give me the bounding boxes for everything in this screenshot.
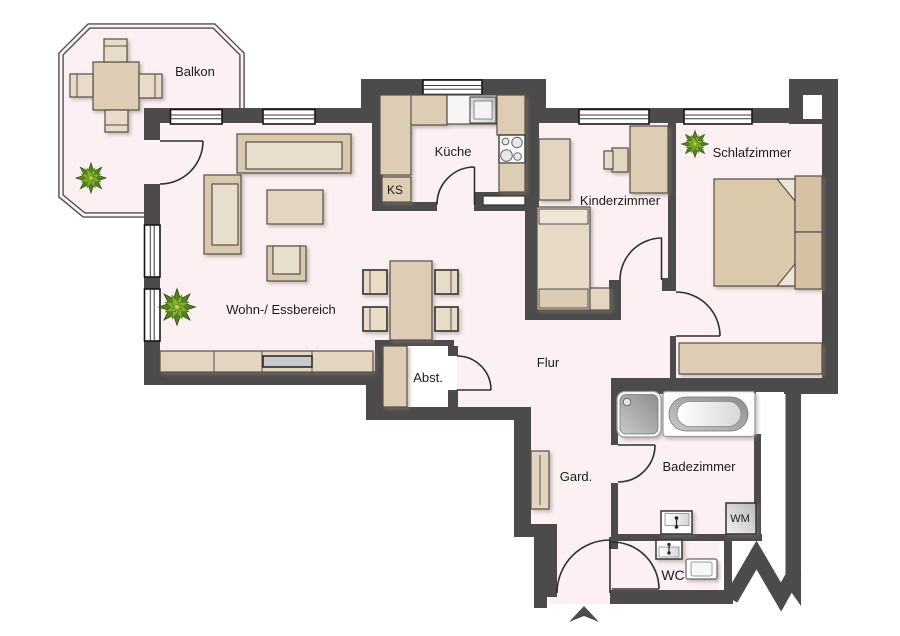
- svg-text:WM: WM: [730, 513, 750, 525]
- svg-text:WC: WC: [661, 567, 684, 583]
- svg-text:Kinderzimmer: Kinderzimmer: [580, 193, 661, 208]
- svg-text:KS: KS: [387, 183, 403, 197]
- svg-text:Abst.: Abst.: [413, 370, 443, 385]
- svg-text:Küche: Küche: [435, 144, 472, 159]
- svg-text:Gard.: Gard.: [560, 469, 593, 484]
- svg-text:Badezimmer: Badezimmer: [663, 459, 737, 474]
- svg-text:Balkon: Balkon: [175, 64, 215, 79]
- svg-text:Schlafzimmer: Schlafzimmer: [713, 145, 792, 160]
- svg-text:Wohn-/ Essbereich: Wohn-/ Essbereich: [226, 302, 336, 317]
- svg-text:Flur: Flur: [537, 355, 560, 370]
